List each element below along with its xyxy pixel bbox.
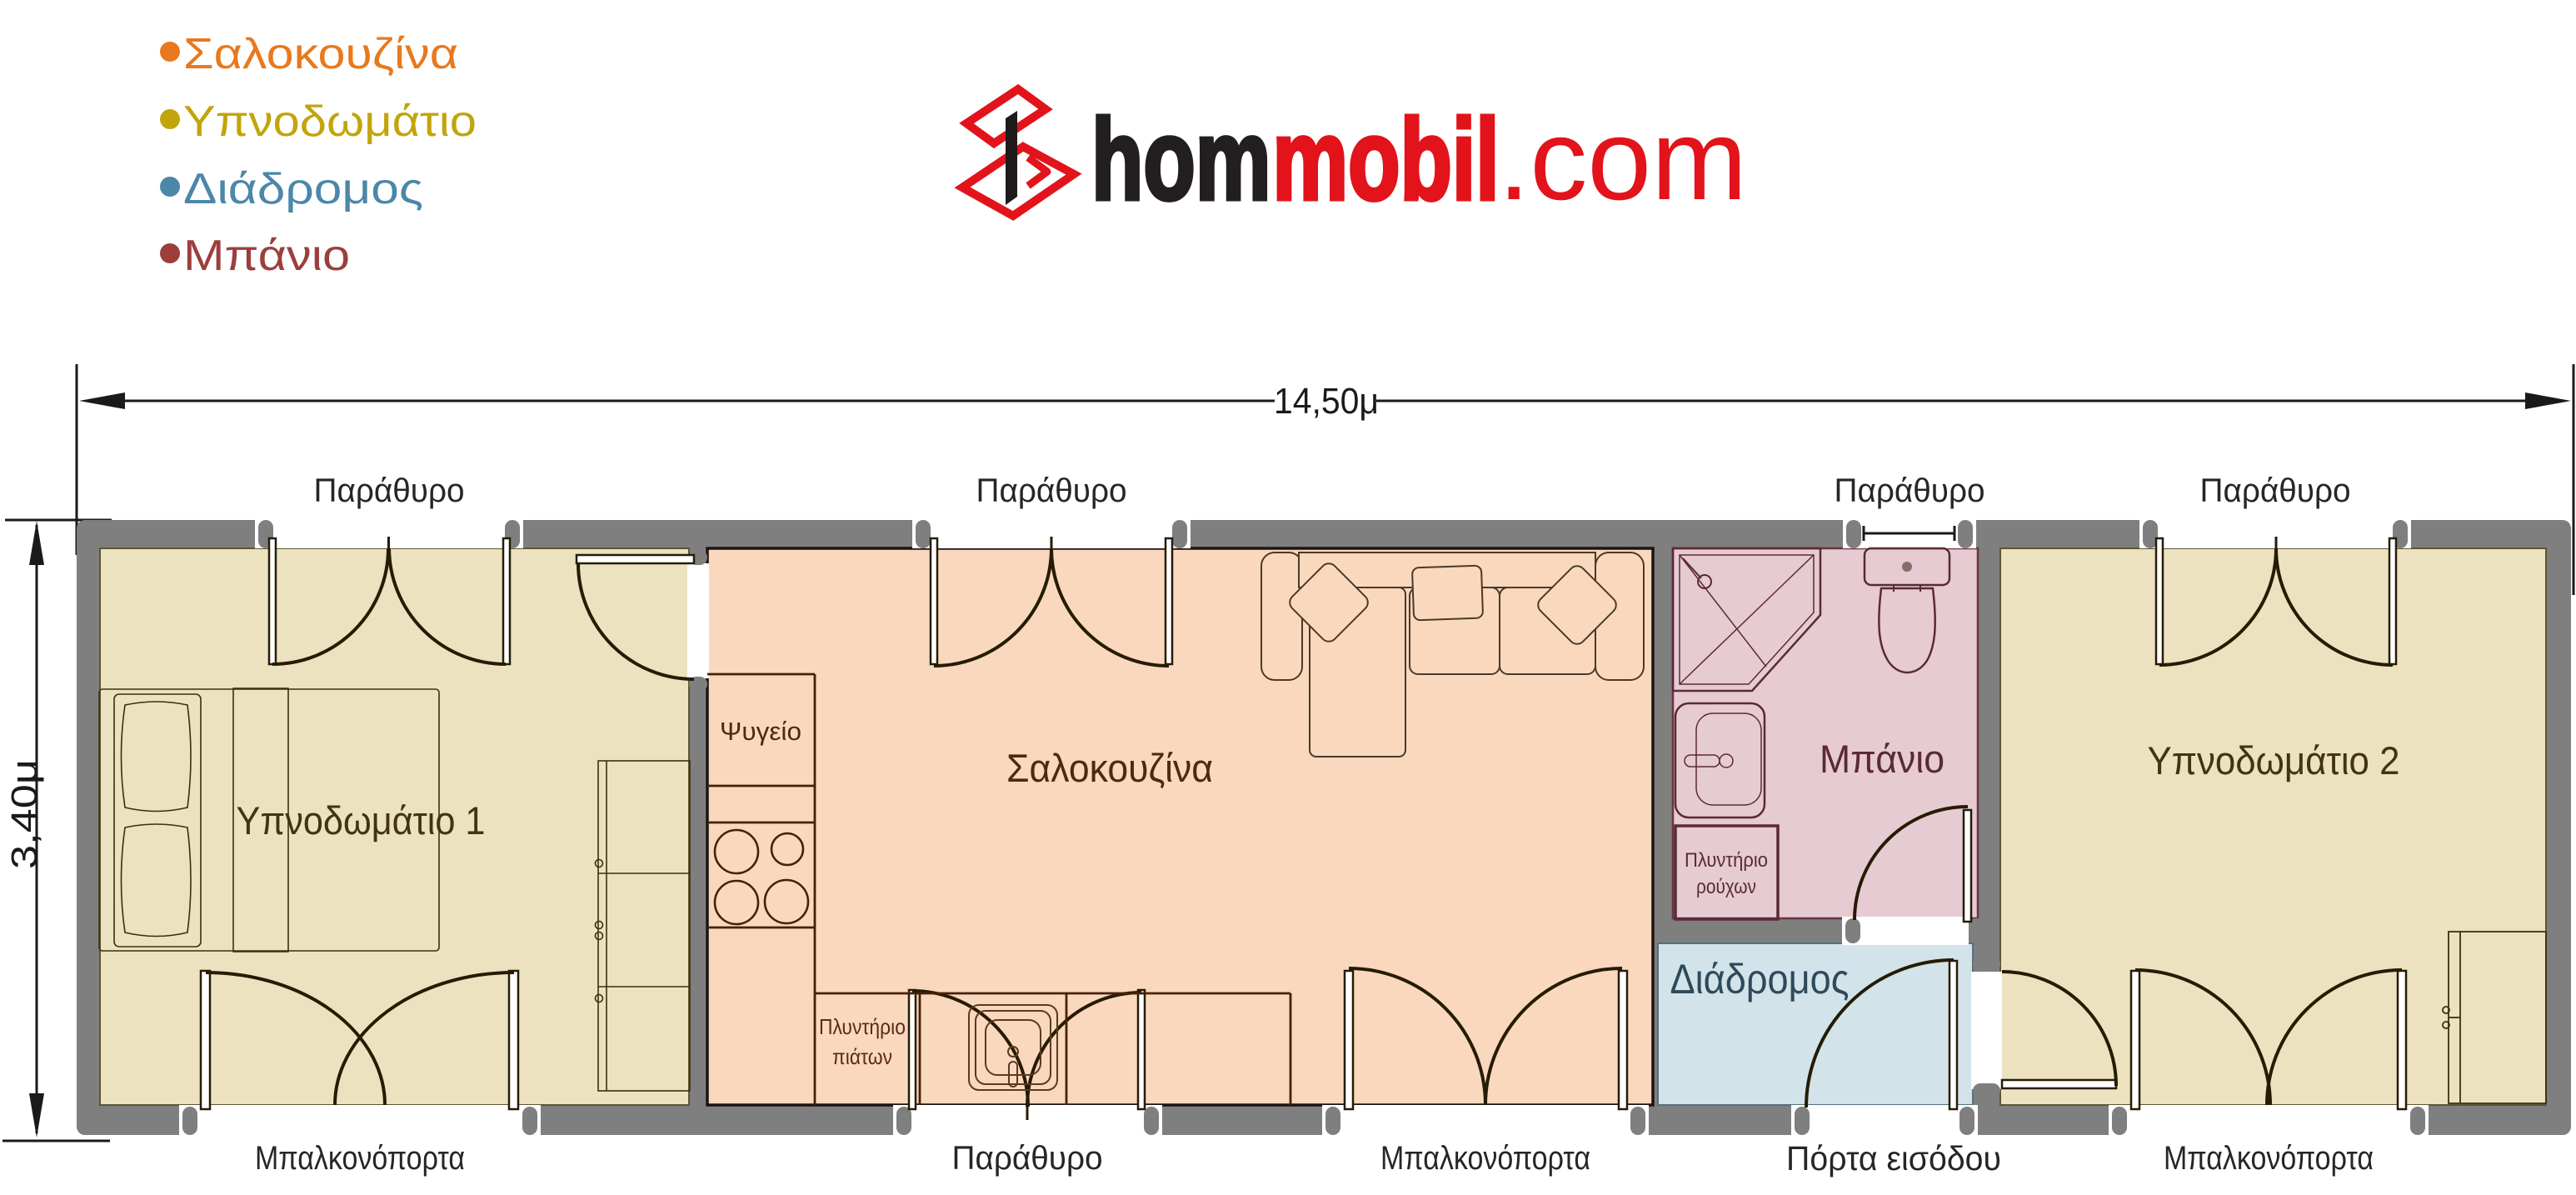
svg-text:3,40μ: 3,40μ [4, 759, 45, 869]
svg-text:hom: hom [1091, 95, 1271, 224]
svg-text:Παράθυρο: Παράθυρο [1835, 472, 1985, 509]
svg-text:14,50μ: 14,50μ [1274, 381, 1379, 422]
svg-text:Πλυντήριο: Πλυντήριο [819, 1014, 906, 1039]
svg-text:Παράθυρο: Παράθυρο [952, 1140, 1103, 1177]
svg-text:Διάδρομος: Διάδρομος [1670, 956, 1850, 1002]
svg-text:Μπάνιο: Μπάνιο [183, 232, 350, 280]
svg-text:.com: .com [1498, 96, 1747, 224]
svg-text:Παράθυρο: Παράθυρο [314, 472, 465, 509]
svg-text:Μπαλκονόπορτα: Μπαλκονόπορτα [255, 1140, 465, 1177]
svg-text:Υπνοδωμάτιο 2: Υπνοδωμάτιο 2 [2148, 738, 2400, 782]
svg-text:Υπνοδωμάτιο: Υπνοδωμάτιο [183, 97, 477, 146]
svg-text:πιάτων: πιάτων [832, 1044, 892, 1069]
svg-text:Μπαλκονόπορτα: Μπαλκονόπορτα [1380, 1140, 1590, 1177]
svg-text:Παράθυρο: Παράθυρο [2200, 472, 2351, 509]
svg-text:ρούχων: ρούχων [1696, 876, 1756, 898]
svg-text:Μπάνιο: Μπάνιο [1820, 737, 1944, 781]
svg-text:mobil: mobil [1272, 95, 1499, 224]
svg-text:Παράθυρο: Παράθυρο [976, 472, 1127, 509]
svg-text:Πλυντήριο: Πλυντήριο [1685, 849, 1768, 872]
svg-text:Σαλοκουζίνα: Σαλοκουζίνα [1006, 746, 1213, 790]
svg-text:Πόρτα εισόδου: Πόρτα εισόδου [1786, 1139, 2001, 1177]
svg-text:Διάδρομος: Διάδρομος [183, 165, 423, 213]
svg-text:Ψυγείο: Ψυγείο [720, 717, 801, 746]
svg-text:Σαλοκουζίνα: Σαλοκουζίνα [183, 30, 458, 78]
svg-text:Υπνοδωμάτιο 1: Υπνοδωμάτιο 1 [237, 798, 486, 842]
svg-text:Μπαλκονόπορτα: Μπαλκονόπορτα [2164, 1140, 2374, 1177]
